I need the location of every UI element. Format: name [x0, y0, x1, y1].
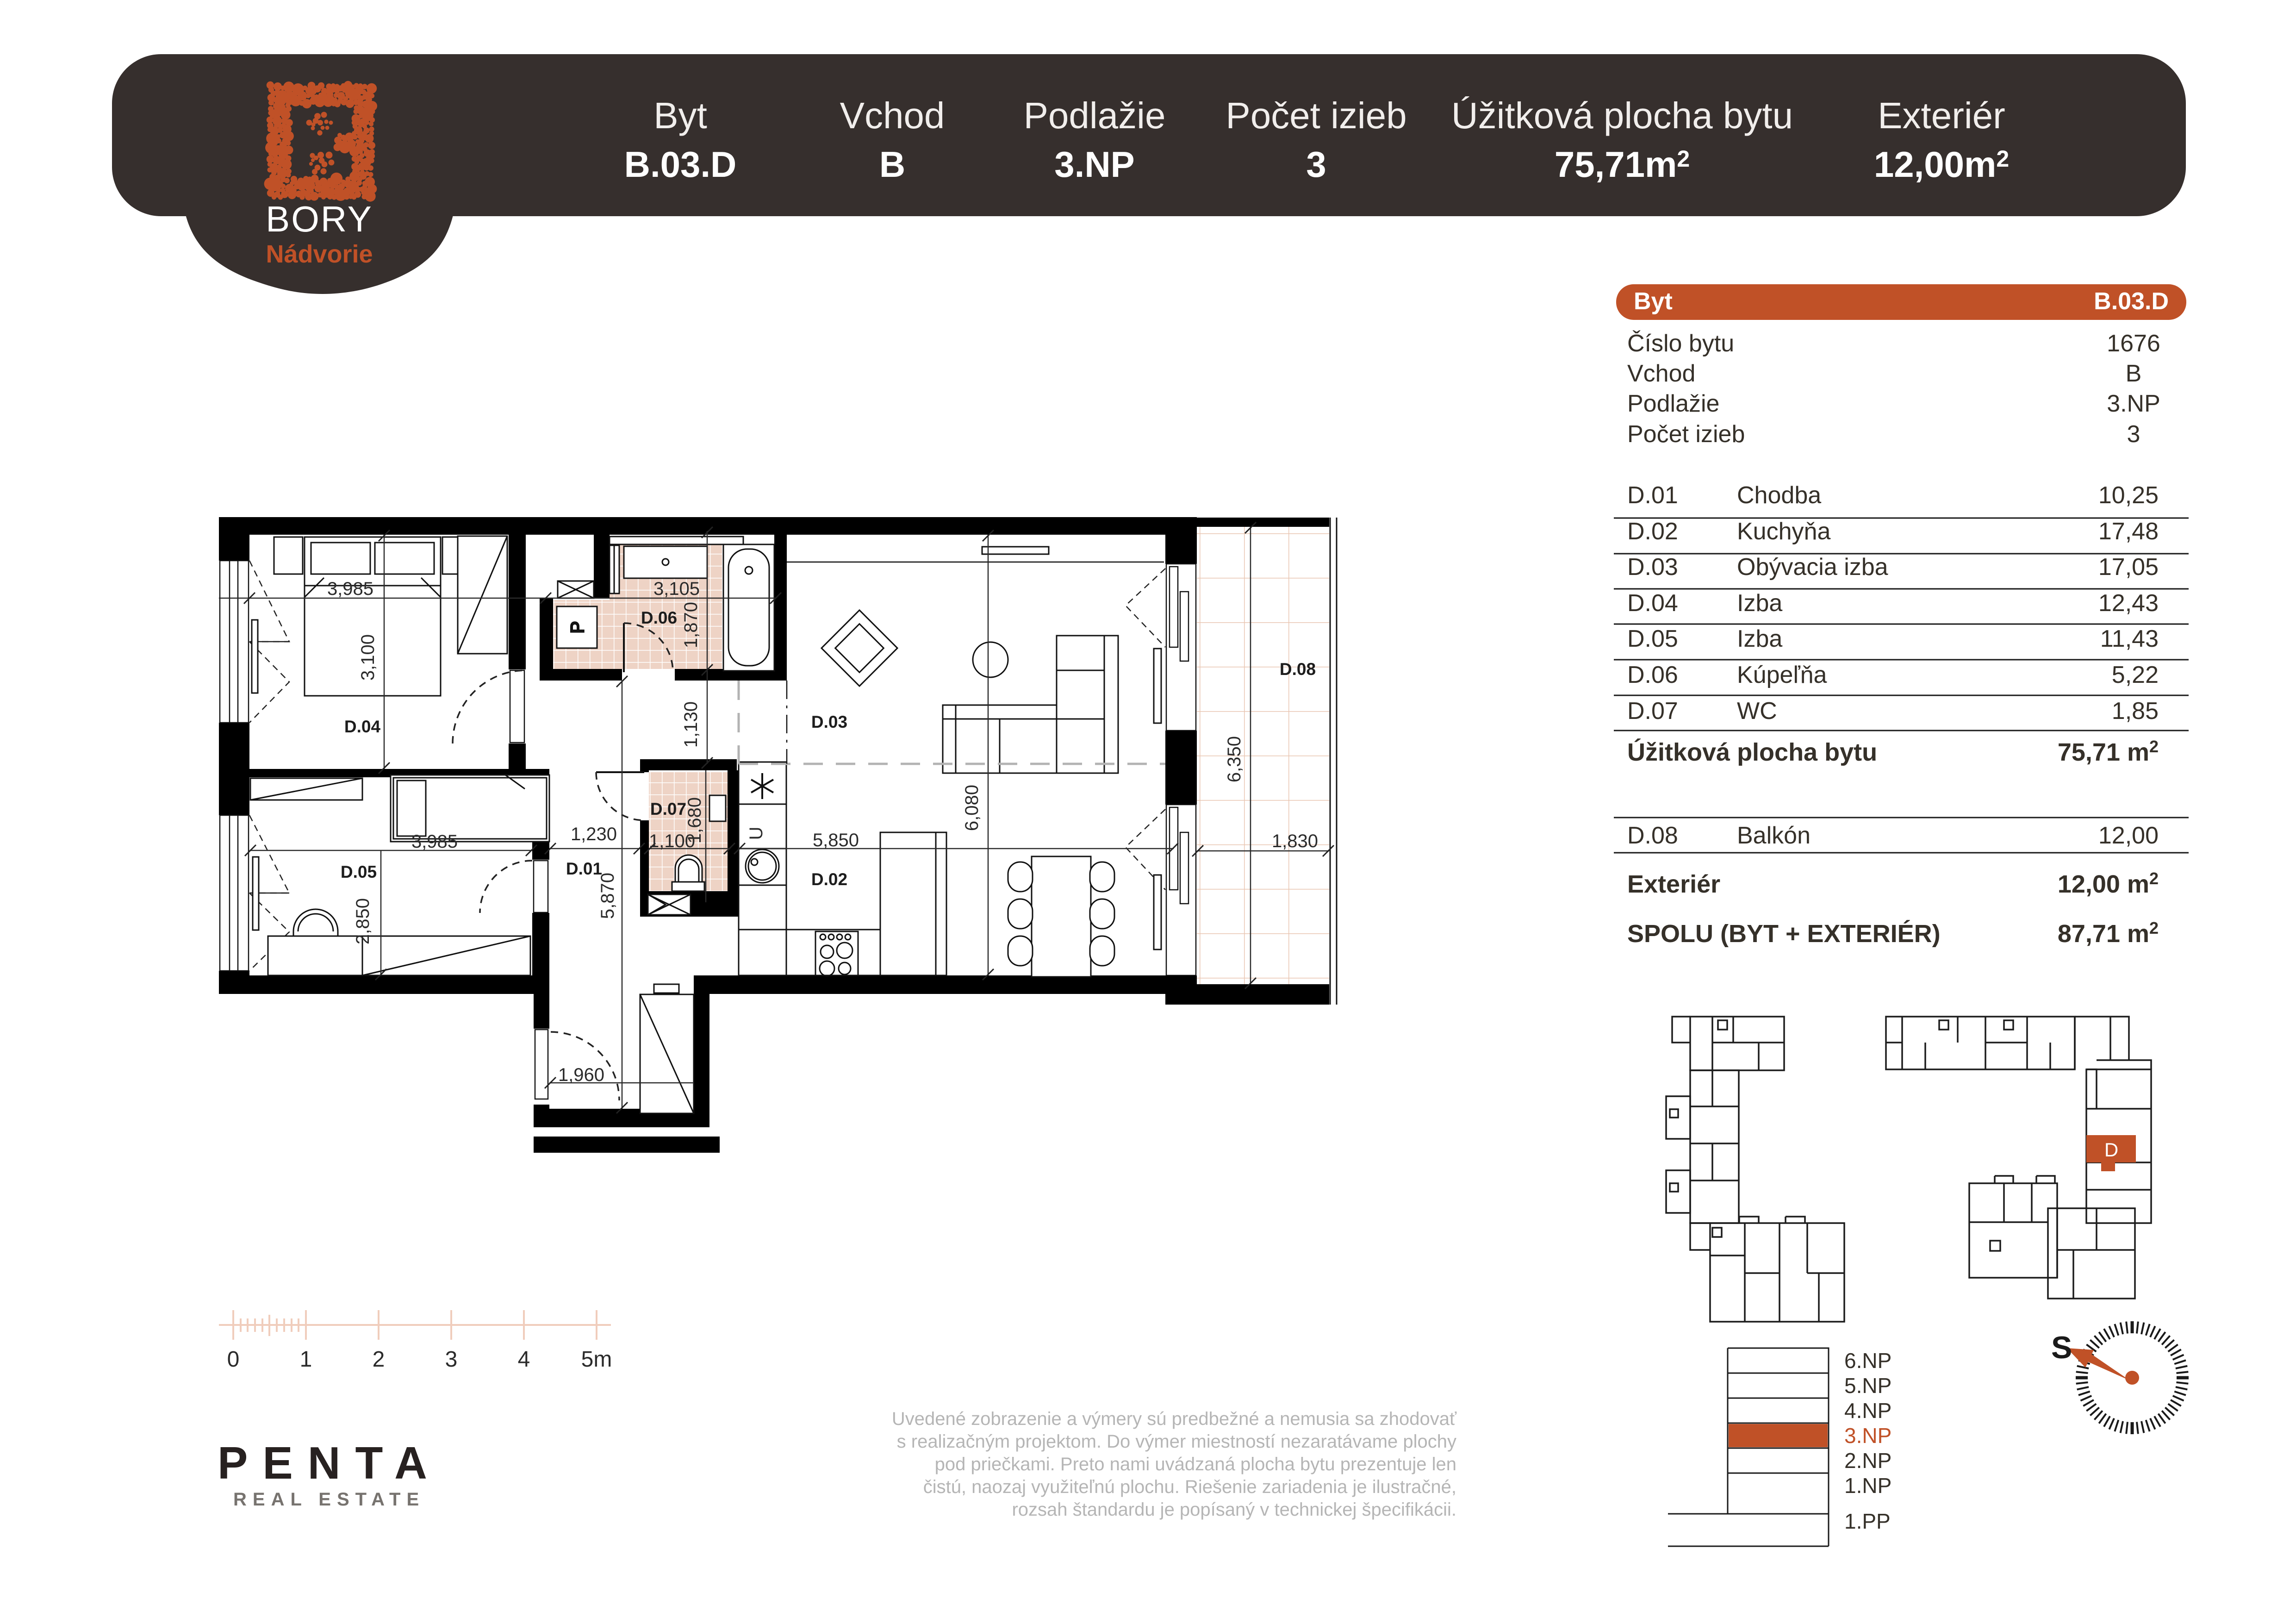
svg-text:1,830: 1,830: [1272, 831, 1318, 851]
svg-text:B.03.D: B.03.D: [2094, 288, 2169, 315]
svg-text:Obývacia izba: Obývacia izba: [1737, 554, 1888, 581]
svg-text:6,350: 6,350: [1224, 736, 1244, 782]
svg-text:D.08: D.08: [1280, 660, 1316, 679]
svg-text:1,230: 1,230: [571, 824, 617, 844]
svg-text:1,870: 1,870: [681, 602, 701, 648]
svg-text:3.NP: 3.NP: [2107, 390, 2160, 417]
svg-text:3,985: 3,985: [411, 831, 458, 852]
svg-text:D.08: D.08: [1627, 822, 1678, 849]
svg-text:2: 2: [373, 1347, 385, 1372]
svg-text:Izba: Izba: [1737, 625, 1782, 652]
svg-text:11,43: 11,43: [2100, 625, 2159, 652]
svg-text:5m: 5m: [581, 1347, 612, 1372]
svg-text:3,105: 3,105: [653, 579, 700, 599]
svg-text:Počet izieb: Počet izieb: [1627, 421, 1745, 448]
svg-text:2.NP: 2.NP: [1844, 1449, 1892, 1473]
svg-text:Byt: Byt: [1634, 288, 1673, 315]
svg-text:5,22: 5,22: [2112, 662, 2159, 688]
svg-text:1,130: 1,130: [681, 701, 701, 748]
svg-text:4.NP: 4.NP: [1844, 1399, 1892, 1423]
svg-text:Podlažie: Podlažie: [1627, 390, 1719, 417]
svg-text:Uvedené zobrazenie a výmery sú: Uvedené zobrazenie a výmery sú predbežné…: [892, 1409, 1457, 1429]
svg-text:1676: 1676: [2107, 330, 2160, 357]
svg-text:Číslo bytu: Číslo bytu: [1627, 330, 1734, 357]
svg-text:Kuchyňa: Kuchyňa: [1737, 518, 1830, 545]
svg-text:BORY: BORY: [266, 199, 373, 239]
svg-text:5,870: 5,870: [597, 873, 618, 919]
svg-text:1.PP: 1.PP: [1844, 1509, 1891, 1533]
svg-text:3.NP: 3.NP: [1054, 144, 1134, 185]
svg-text:12,43: 12,43: [2098, 590, 2159, 617]
svg-text:pod priečkami. Preto nami uvád: pod priečkami. Preto nami uvádzaná ploch…: [935, 1454, 1456, 1474]
svg-text:Počet izieb: Počet izieb: [1226, 95, 1406, 136]
svg-text:Podlažie: Podlažie: [1024, 95, 1166, 136]
svg-text:B: B: [2126, 360, 2142, 387]
svg-text:17,48: 17,48: [2098, 518, 2159, 545]
svg-text:S: S: [2051, 1330, 2072, 1365]
svg-text:1,85: 1,85: [2112, 698, 2159, 725]
svg-text:1: 1: [300, 1347, 312, 1372]
svg-text:Vchod: Vchod: [840, 95, 945, 136]
svg-text:Byt: Byt: [653, 95, 707, 136]
svg-text:3,985: 3,985: [327, 579, 373, 599]
svg-text:87,71 m2: 87,71 m2: [2058, 918, 2159, 948]
svg-text:12,00m2: 12,00m2: [1874, 144, 2009, 185]
svg-text:1,960: 1,960: [558, 1065, 604, 1085]
svg-text:1,680: 1,680: [684, 797, 705, 843]
svg-text:12,00: 12,00: [2098, 822, 2159, 849]
svg-text:75,71 m2: 75,71 m2: [2058, 737, 2159, 766]
svg-text:B.03.D: B.03.D: [624, 144, 737, 185]
svg-text:3.NP: 3.NP: [1844, 1424, 1892, 1448]
svg-text:Nádvorie: Nádvorie: [266, 240, 373, 268]
svg-text:SPOLU (BYT + EXTERIÉR): SPOLU (BYT + EXTERIÉR): [1627, 920, 1941, 948]
svg-text:Izba: Izba: [1737, 590, 1782, 617]
svg-text:D.04: D.04: [1627, 590, 1678, 617]
svg-text:D.05: D.05: [341, 862, 377, 881]
svg-text:3: 3: [2127, 421, 2140, 448]
svg-text:4: 4: [518, 1347, 530, 1372]
svg-text:čistú, naozaj využiteľnú ploch: čistú, naozaj využiteľnú plochu. Riešeni…: [923, 1477, 1456, 1497]
svg-text:D.03: D.03: [1627, 554, 1678, 581]
svg-text:WC: WC: [1737, 698, 1777, 725]
svg-text:D.02: D.02: [1627, 518, 1678, 545]
svg-text:17,05: 17,05: [2098, 554, 2159, 581]
svg-text:P: P: [567, 621, 588, 634]
svg-text:U: U: [746, 827, 766, 840]
svg-text:2,850: 2,850: [353, 898, 373, 944]
svg-text:Chodba: Chodba: [1737, 482, 1821, 509]
svg-text:3: 3: [445, 1347, 458, 1372]
svg-text:D.07: D.07: [1627, 698, 1678, 725]
svg-text:3: 3: [1306, 144, 1326, 185]
svg-text:5.NP: 5.NP: [1844, 1374, 1892, 1398]
svg-text:s realizačným projektom. Do vý: s realizačným projektom. Do výmer miestn…: [897, 1431, 1456, 1452]
svg-text:REAL ESTATE: REAL ESTATE: [233, 1489, 425, 1510]
svg-text:1.NP: 1.NP: [1844, 1474, 1892, 1498]
svg-text:PENTA: PENTA: [218, 1437, 442, 1488]
svg-text:D.06: D.06: [1627, 662, 1678, 688]
svg-text:D.01: D.01: [1627, 482, 1678, 509]
svg-text:rozsah štandardu je popísaný v: rozsah štandardu je popísaný v technicke…: [1012, 1499, 1456, 1520]
svg-text:Úžitková plocha bytu: Úžitková plocha bytu: [1451, 95, 1793, 136]
svg-text:6.NP: 6.NP: [1844, 1349, 1892, 1373]
svg-text:D.07: D.07: [650, 800, 686, 818]
svg-text:75,71m2: 75,71m2: [1555, 144, 1690, 185]
svg-text:Exteriér: Exteriér: [1878, 95, 2005, 136]
svg-text:Vchod: Vchod: [1627, 360, 1695, 387]
svg-text:Úžitková plocha bytu: Úžitková plocha bytu: [1627, 738, 1877, 766]
svg-text:D.05: D.05: [1627, 625, 1678, 652]
svg-text:D.02: D.02: [811, 870, 847, 889]
svg-text:Kúpeľňa: Kúpeľňa: [1737, 662, 1827, 688]
svg-text:D: D: [2104, 1139, 2118, 1161]
svg-text:D.03: D.03: [811, 712, 847, 731]
svg-text:Balkón: Balkón: [1737, 822, 1811, 849]
svg-text:3,100: 3,100: [358, 634, 378, 681]
svg-text:10,25: 10,25: [2098, 482, 2159, 509]
svg-text:B: B: [879, 144, 905, 185]
svg-text:6,080: 6,080: [962, 785, 982, 831]
svg-text:5,850: 5,850: [813, 830, 859, 850]
svg-text:D.01: D.01: [566, 859, 602, 878]
svg-text:D.06: D.06: [641, 608, 677, 627]
svg-text:Exteriér: Exteriér: [1627, 870, 1720, 898]
svg-text:12,00 m2: 12,00 m2: [2058, 869, 2159, 898]
svg-text:0: 0: [227, 1347, 240, 1372]
svg-text:D.04: D.04: [344, 717, 381, 736]
